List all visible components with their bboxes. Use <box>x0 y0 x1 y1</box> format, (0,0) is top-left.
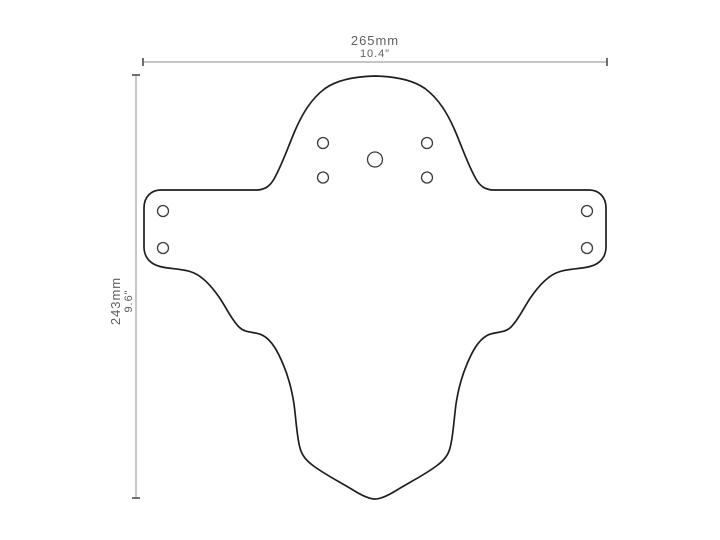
mounting-hole-center-right-top <box>422 138 433 149</box>
mounting-hole-center-main <box>368 152 383 167</box>
mounting-hole-center-right-bottom <box>422 172 433 183</box>
fender-technical-drawing <box>0 0 720 540</box>
height-imperial-value: 9.6" <box>123 277 135 325</box>
mounting-hole-center-left-top <box>318 138 329 149</box>
fender-outline <box>144 76 606 499</box>
height-dimension-label: 243mm 9.6" <box>109 277 135 325</box>
mounting-hole-center-left-bottom <box>318 172 329 183</box>
width-metric-value: 265mm <box>351 34 399 48</box>
height-metric-value: 243mm <box>109 277 123 325</box>
mounting-holes <box>158 138 593 254</box>
mounting-hole-right-wing-top <box>582 206 593 217</box>
mounting-hole-left-wing-bottom <box>158 243 169 254</box>
width-dimension-label: 265mm 10.4" <box>351 34 399 60</box>
mounting-hole-left-wing-top <box>158 206 169 217</box>
mounting-hole-right-wing-bottom <box>582 243 593 254</box>
drawing-canvas: 265mm 10.4" 243mm 9.6" <box>0 0 720 540</box>
width-imperial-value: 10.4" <box>351 48 399 60</box>
